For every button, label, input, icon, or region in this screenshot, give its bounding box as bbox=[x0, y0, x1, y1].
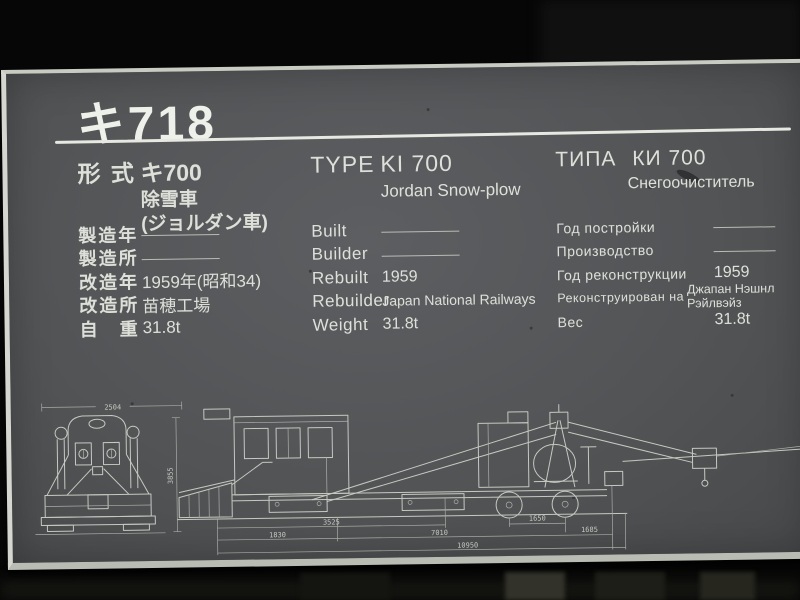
spec-row: Rebuilder Japan National Railways bbox=[312, 287, 550, 314]
spec-value: 1959 bbox=[714, 263, 750, 281]
blank-value-line bbox=[141, 234, 219, 236]
spec-row: Weight 31.8t bbox=[312, 310, 550, 337]
spec-row: Год постройки bbox=[556, 213, 800, 240]
background-post bbox=[505, 572, 565, 600]
background-post bbox=[700, 572, 755, 600]
type-subtitle: 除雪車 bbox=[141, 188, 310, 212]
dimension-label: 3525 bbox=[323, 518, 340, 526]
dimension-label: 1830 bbox=[269, 531, 286, 539]
spec-label: Год реконструкции bbox=[557, 265, 714, 283]
spec-value: 苗穂工場 bbox=[142, 291, 210, 317]
spec-rows: Год постройки Производство Год реконстру… bbox=[556, 213, 800, 334]
type-row: 形 式 キ700 bbox=[77, 152, 309, 189]
blank-value-line bbox=[382, 254, 460, 256]
spec-label: Built bbox=[311, 221, 381, 242]
information-plaque: キ718 形 式 キ700 除雪車 (ジョルダン車) 製造年 製造所 改造年 1… bbox=[1, 59, 800, 570]
spec-value: 31.8t bbox=[382, 315, 418, 333]
spec-rows: Built Builder Rebuilt 1959 Rebuilder Jap… bbox=[311, 216, 551, 337]
spec-label: Weight bbox=[312, 314, 382, 335]
spec-row: Builder bbox=[311, 240, 549, 267]
spec-value: 1959年(昭和34) bbox=[142, 267, 261, 294]
plate-speck bbox=[427, 108, 430, 111]
spec-row: 改造所 苗穂工場 bbox=[79, 290, 311, 317]
type-row: TYPE KI 700 bbox=[310, 148, 548, 178]
spec-value: Japan National Railways bbox=[382, 291, 536, 309]
spec-row: Rebuilt 1959 bbox=[312, 263, 550, 290]
type-label: 形 式 bbox=[77, 154, 140, 189]
photo-background-shade bbox=[0, 580, 800, 600]
spec-label: Реконструирован на bbox=[557, 290, 687, 306]
column-english: TYPE KI 700 Jordan Snow-plow Built Build… bbox=[310, 148, 549, 202]
blank-value-line bbox=[714, 250, 776, 252]
side-view-drawing: 3525 1650 1830 7010 1685 10950 bbox=[176, 389, 800, 570]
column-japanese: 形 式 キ700 除雪車 (ジョルダン車) 製造年 製造所 改造年 1959年(… bbox=[77, 152, 310, 237]
spec-row: 製造所 bbox=[78, 243, 310, 270]
spec-value: 1959 bbox=[382, 268, 418, 286]
spec-value: 31.8t bbox=[142, 317, 180, 338]
background-post bbox=[300, 572, 390, 600]
blank-value-line bbox=[381, 231, 459, 233]
spec-label: Rebuilt bbox=[312, 268, 382, 289]
spec-row: Реконструирован на Джапан Нэшнл Рэйлвэйз bbox=[557, 283, 800, 310]
spec-label: Год постройки bbox=[556, 218, 713, 236]
spec-row: 自 重 31.8t bbox=[79, 314, 311, 341]
type-subtitle: Jordan Snow-plow bbox=[381, 179, 549, 201]
spec-row: 製造年 bbox=[78, 220, 310, 247]
dimension-label: 3855 bbox=[167, 467, 175, 484]
dimension-label: 10950 bbox=[457, 541, 478, 549]
spec-row: Производство bbox=[556, 236, 800, 263]
spec-row: 改造年 1959年(昭和34) bbox=[79, 267, 311, 294]
type-subtitle: Снегоочиститель bbox=[628, 173, 800, 193]
dimension-label: 1650 bbox=[529, 514, 546, 522]
spec-label: Производство bbox=[556, 241, 713, 259]
dimension-label: 7010 bbox=[431, 529, 448, 537]
spec-label: Builder bbox=[311, 244, 381, 265]
spec-label: Rebuilder bbox=[312, 291, 382, 312]
type-label: TYPE bbox=[310, 151, 380, 179]
type-row: ТИПА КИ 700 bbox=[555, 145, 800, 172]
dimension-label: 1685 bbox=[581, 526, 598, 534]
blank-value-line bbox=[713, 227, 775, 229]
column-russian: ТИПА КИ 700 Снегоочиститель Год постройк… bbox=[555, 145, 800, 194]
spec-label: Вес bbox=[557, 312, 714, 330]
spec-rows: 製造年 製造所 改造年 1959年(昭和34) 改造所 苗穂工場 自 重 31.… bbox=[78, 220, 312, 341]
background-post bbox=[595, 572, 665, 600]
blank-value-line bbox=[142, 258, 220, 260]
spec-value: Джапан Нэшнл Рэйлвэйз bbox=[687, 281, 800, 311]
type-value: キ700 bbox=[140, 153, 202, 188]
type-value: KI 700 bbox=[380, 150, 453, 178]
spec-label: 自 重 bbox=[79, 315, 142, 342]
spec-value: 31.8t bbox=[714, 310, 750, 328]
spec-row: Built bbox=[311, 216, 549, 243]
type-label: ТИПА bbox=[555, 147, 632, 172]
spec-row: Вес 31.8t bbox=[557, 307, 800, 334]
dimension-label: 2504 bbox=[104, 403, 121, 411]
front-view-drawing: 2504 3855 bbox=[34, 391, 196, 561]
vehicle-number-title: キ718 bbox=[76, 83, 217, 155]
type-value: КИ 700 bbox=[632, 146, 707, 171]
